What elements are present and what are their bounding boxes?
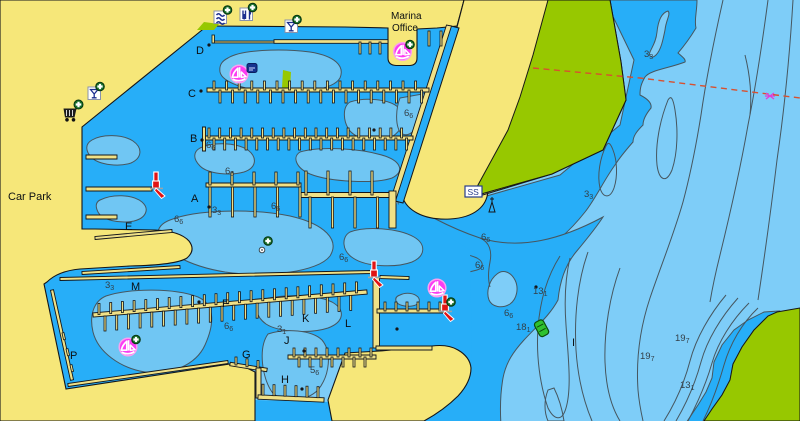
svg-text:D: D — [196, 45, 204, 57]
svg-text:Marina: Marina — [391, 11, 422, 22]
svg-text:Office: Office — [392, 23, 418, 34]
svg-text:H: H — [281, 374, 289, 386]
svg-text:Car Park: Car Park — [8, 191, 52, 203]
svg-text:A: A — [191, 193, 199, 205]
svg-text:G: G — [242, 349, 251, 361]
svg-text:E: E — [125, 221, 132, 233]
svg-text:K: K — [302, 313, 310, 325]
svg-text:I: I — [572, 337, 575, 349]
svg-text:M: M — [131, 281, 140, 293]
svg-text:C: C — [188, 88, 196, 100]
svg-text:L: L — [345, 318, 351, 330]
svg-text:J: J — [284, 335, 290, 347]
svg-text:P: P — [70, 350, 77, 362]
svg-text:SS: SS — [468, 187, 480, 197]
svg-text:F: F — [222, 298, 229, 310]
svg-text:B: B — [190, 133, 197, 145]
